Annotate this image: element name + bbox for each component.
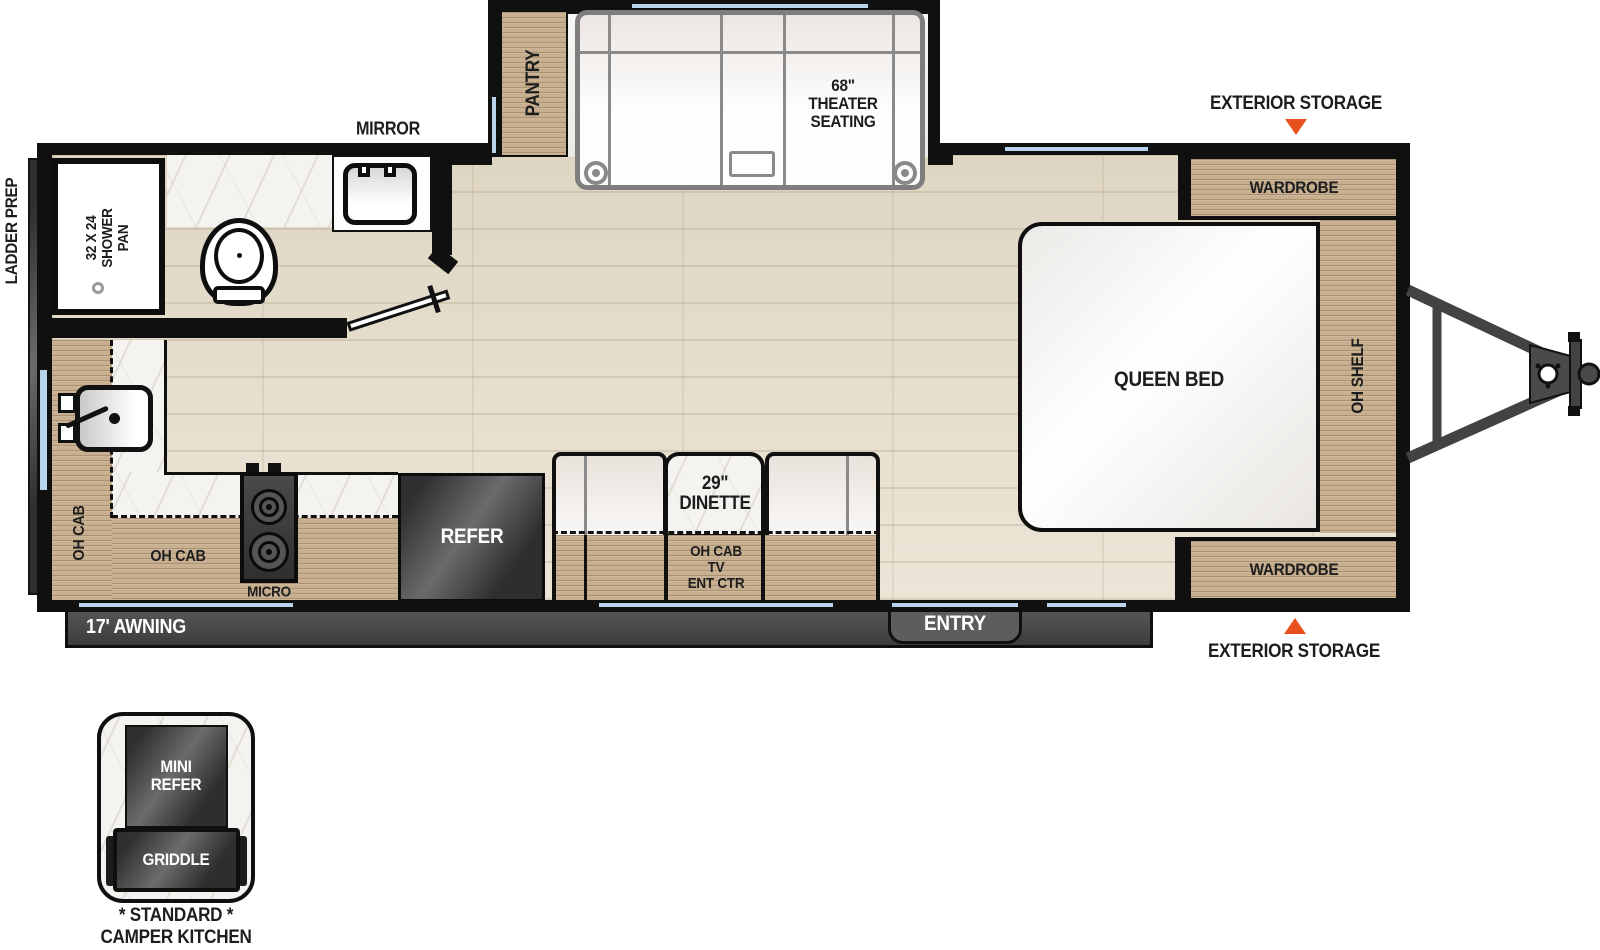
exterior-storage-bottom-arrow: [1284, 618, 1306, 634]
micro-cooktop: [240, 472, 298, 583]
rear-wall-window: [38, 368, 49, 492]
wardrobe-bottom-left-wall: [1175, 537, 1187, 602]
sofa-console-left-line: [720, 15, 723, 185]
burner-top-dot: [266, 504, 272, 510]
top-wall-left: [37, 143, 492, 155]
standard-label: * STANDARD *: [119, 905, 233, 927]
theater-seating-label: 68" THEATER SEATING: [808, 77, 877, 131]
shower-label: 32 X 24 SHOWER PAN: [84, 208, 132, 267]
oh-cab-left-label: OH CAB: [71, 505, 89, 560]
counter-left-edge: [164, 340, 167, 474]
floorplan-diagram: PANTRY 68" THEATER SEATING OH CAB OH CAB: [0, 0, 1600, 950]
dinette-line-5: [876, 535, 880, 600]
kitchen-sink-drain: [109, 413, 120, 424]
dinette-line-2: [584, 535, 587, 600]
exterior-storage-bottom-label: EXTERIOR STORAGE: [1208, 641, 1380, 663]
sofa-console-right-line: [783, 15, 786, 185]
dinette-dashed: [552, 531, 880, 534]
sofa-wheel-left-dot: [592, 169, 600, 177]
sofa-armrest-right-line: [892, 15, 895, 185]
bathroom-divider-wall: [50, 318, 347, 338]
bath-faucet-left: [358, 163, 370, 177]
griddle-label: GRIDDLE: [143, 850, 210, 870]
dinette-line-1: [552, 535, 556, 600]
pantry-label: PANTRY: [523, 50, 545, 117]
dinette-label: 29" DINETTE: [679, 474, 750, 514]
toilet-dot: [237, 253, 242, 258]
oh-shelf-label: OH SHELF: [1348, 338, 1368, 413]
burner-bottom-dot: [266, 549, 272, 555]
top-wall-right: [928, 143, 1410, 155]
exterior-storage-top-arrow: [1285, 119, 1307, 135]
dinette-oh-cab-label: OH CAB TV ENT CTR: [688, 544, 745, 592]
exterior-storage-top-label: EXTERIOR STORAGE: [1210, 93, 1382, 115]
top-wall-right-step: [928, 143, 953, 165]
bathroom-counter-area: [167, 155, 333, 227]
sofa-wheel-right-dot: [901, 169, 909, 177]
refer-label: REFER: [441, 525, 504, 549]
slideout-top-window: [630, 2, 870, 10]
kitchen-faucet-mount-top: [58, 393, 76, 413]
wardrobe-top-label: WARDROBE: [1250, 178, 1339, 198]
top-wall-left-step: [448, 143, 492, 165]
bedroom-top-window: [1003, 145, 1150, 153]
bedroom-bottom-window: [1045, 601, 1128, 609]
shower-drain: [92, 282, 104, 294]
bath-sink-basin: [343, 163, 417, 225]
hitch-a-frame: [1400, 278, 1600, 468]
sofa-armrest-left-line: [608, 15, 611, 185]
kitchen-bottom-window: [77, 601, 295, 609]
sofa-back-line: [580, 51, 920, 54]
dinette-line-4: [761, 535, 765, 600]
ladder-prep-label: LADDER PREP: [2, 178, 22, 285]
oh-cab-left-region: [52, 340, 112, 602]
toilet-base: [213, 286, 265, 304]
slideout-side-window: [490, 95, 498, 155]
micro-label: MICRO: [247, 584, 291, 601]
camper-kitchen-label: CAMPER KITCHEN: [100, 927, 251, 949]
slideout-right-wall: [928, 0, 940, 157]
sofa-cupholder-tray: [729, 151, 775, 177]
entry-label: ENTRY: [924, 612, 986, 636]
queen-bed-label: QUEEN BED: [1114, 368, 1224, 392]
oh-shelf-dashed: [1316, 222, 1320, 532]
bathroom-door-stub: [432, 155, 452, 255]
dinette-line-3: [664, 535, 668, 600]
entry-window: [890, 601, 1020, 609]
dinette-bottom-window: [597, 601, 835, 609]
oh-cab-bottom-label: OH CAB: [150, 548, 205, 566]
wardrobe-top-left-wall: [1178, 155, 1187, 220]
wardrobe-bottom-label: WARDROBE: [1250, 560, 1339, 580]
mini-refer-label: MINI REFER: [151, 758, 202, 794]
awning-label: 17' AWNING: [86, 616, 186, 639]
mirror-label: MIRROR: [356, 119, 420, 140]
bath-faucet-right: [384, 163, 396, 177]
